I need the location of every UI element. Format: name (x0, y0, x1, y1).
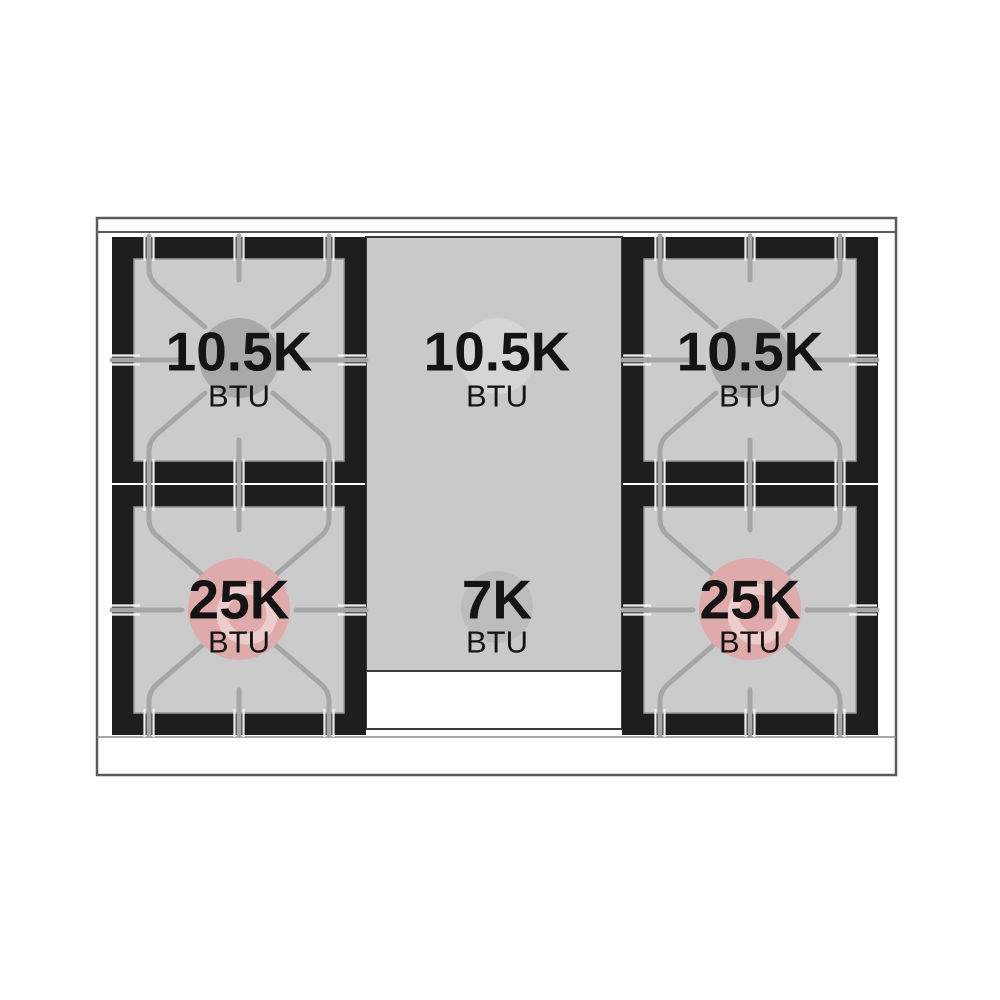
burner-top-left-unit: BTU (208, 381, 270, 412)
burner-top-right-rating: 10.5K (677, 325, 824, 380)
burner-bottom-right-unit: BTU (719, 627, 781, 658)
burner-bottom-center-unit: BTU (466, 627, 528, 658)
burner-bottom-right-rating: 25K (700, 573, 801, 628)
burner-top-right-unit: BTU (719, 381, 781, 412)
cooktop-graphic (0, 0, 1000, 1000)
griddle-drip-tray (366, 671, 622, 729)
burner-top-left-rating: 10.5K (166, 325, 313, 380)
cooktop-diagram: 10.5K BTU 10.5K BTU 10.5K BTU 25K BTU 7K… (0, 0, 1000, 1000)
burner-bottom-center-rating: 7K (462, 573, 532, 628)
burner-top-center-unit: BTU (466, 381, 528, 412)
burner-top-center-rating: 10.5K (424, 325, 571, 380)
burner-bottom-left-unit: BTU (208, 627, 270, 658)
burner-bottom-left-rating: 25K (189, 573, 290, 628)
